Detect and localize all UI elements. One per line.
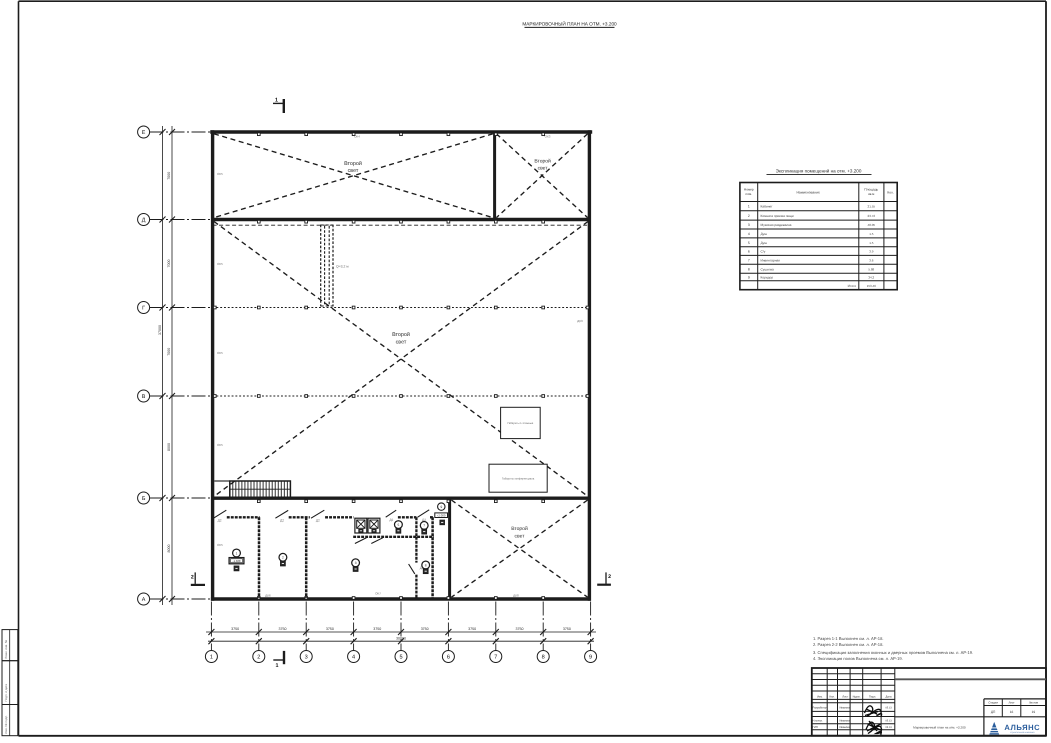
svg-text:Q=3,2 м: Q=3,2 м: [336, 264, 349, 268]
svg-text:30000: 30000: [396, 636, 406, 640]
svg-text:3750: 3750: [421, 627, 429, 631]
svg-text:ДК9: ДК9: [577, 319, 583, 323]
svg-text:7000: 7000: [167, 260, 171, 268]
svg-text:5: 5: [399, 655, 402, 661]
svg-text:свет: свет: [538, 165, 549, 171]
svg-text:ДК6: ДК6: [265, 594, 271, 598]
svg-text:Лист: Лист: [842, 695, 849, 698]
svg-text:Кол.: Кол.: [887, 191, 893, 195]
svg-text:Комната приема пищи: Комната приема пищи: [761, 214, 794, 218]
svg-text:7000: 7000: [167, 172, 171, 180]
svg-text:Второй: Второй: [511, 526, 528, 532]
svg-text:7000: 7000: [167, 348, 171, 356]
svg-text:ГИП: ГИП: [813, 726, 818, 729]
svg-text:3.6: 3.6: [869, 258, 874, 262]
svg-text:8: 8: [425, 563, 427, 567]
svg-text:Маркировочный план на отм. +3.: Маркировочный план на отм. +3.200: [913, 726, 966, 730]
svg-text:3750: 3750: [563, 627, 571, 631]
svg-text:Лист: Лист: [1008, 701, 1015, 705]
svg-text:05.13: 05.13: [885, 726, 892, 729]
svg-text:Изм.: Изм.: [817, 695, 823, 698]
svg-text:3. Спецификация заполнения око: 3. Спецификация заполнения оконных и две…: [813, 650, 973, 655]
svg-text:свет: свет: [348, 168, 359, 174]
svg-text:3.9: 3.9: [869, 250, 874, 254]
svg-text:8: 8: [542, 655, 545, 661]
svg-text:Подп. и дата: Подп. и дата: [4, 683, 8, 701]
svg-text:АЛЬЯНС: АЛЬЯНС: [1004, 723, 1040, 732]
svg-text:Номер: Номер: [744, 188, 754, 192]
svg-text:Д2: Д2: [316, 519, 320, 523]
svg-text:4: 4: [352, 655, 355, 661]
svg-text:Стадия: Стадия: [988, 701, 998, 705]
svg-text:8000: 8000: [167, 545, 171, 553]
svg-text:2: 2: [257, 655, 260, 661]
svg-text:19: 19: [1032, 710, 1036, 714]
svg-text:05.13: 05.13: [885, 720, 892, 723]
svg-text:Кол.: Кол.: [830, 695, 836, 698]
svg-text:1: 1: [276, 663, 279, 669]
svg-text:Площадь: Площадь: [864, 188, 878, 192]
svg-text:3: 3: [305, 655, 308, 661]
svg-text:ОК7: ОК7: [375, 592, 381, 596]
svg-text:Габариты конференцзала: Габариты конференцзала: [502, 477, 535, 480]
svg-text:Д: Д: [142, 217, 146, 223]
svg-text:Иванова: Иванова: [840, 726, 851, 729]
svg-text:Сушилка: Сушилка: [761, 267, 775, 271]
svg-text:3: 3: [748, 223, 750, 227]
svg-text:А: А: [142, 597, 146, 603]
svg-text:Коридор: Коридор: [761, 276, 774, 280]
svg-text:8000: 8000: [167, 443, 171, 451]
svg-text:1: 1: [748, 205, 750, 209]
svg-text:Взам. инв. №: Взам. инв. №: [4, 639, 8, 658]
svg-text:7: 7: [748, 258, 750, 262]
svg-text:Душ: Душ: [761, 232, 768, 236]
svg-text:МАРКИРОВОЧНЫЙ ПЛАН НА ОТМ. +3.: МАРКИРОВОЧНЫЙ ПЛАН НА ОТМ. +3.200: [522, 20, 617, 26]
svg-text:Дата: Дата: [886, 695, 892, 698]
svg-text:3750: 3750: [373, 627, 381, 631]
svg-text:2: 2: [282, 556, 284, 560]
svg-text:ОК5: ОК5: [217, 262, 223, 266]
svg-text:Д2: Д2: [389, 518, 393, 522]
svg-text:ОК4: ОК4: [354, 135, 360, 139]
svg-text:1: 1: [275, 98, 278, 104]
svg-text:свет: свет: [396, 339, 407, 345]
svg-text:4. Экспликация полов Выполнена: 4. Экспликация полов Выполнена см. л. АР…: [813, 656, 903, 661]
svg-text:1. Разрез 1-1 Выполнен см. л.: 1. Разрез 1-1 Выполнен см. л. АР-18.: [813, 636, 884, 641]
svg-text:Второй: Второй: [534, 159, 551, 165]
svg-text:7: 7: [423, 524, 425, 528]
svg-text:+2.000: +2.000: [437, 514, 446, 518]
svg-text:ДК8: ДК8: [513, 594, 519, 598]
svg-text:Н.контр.: Н.контр.: [813, 720, 824, 723]
svg-text:Габариты 1-этажные: Габариты 1-этажные: [508, 422, 534, 425]
svg-text:Второй: Второй: [344, 161, 362, 167]
svg-text:Д2: Д2: [280, 519, 284, 523]
svg-text:Душ: Душ: [761, 241, 768, 245]
svg-text:7: 7: [494, 655, 497, 661]
svg-text:6: 6: [447, 655, 450, 661]
svg-text:3750: 3750: [231, 627, 239, 631]
svg-text:строительная компания: строительная компания: [1010, 731, 1035, 734]
svg-text:153.46: 153.46: [867, 284, 877, 288]
svg-text:1.5: 1.5: [869, 241, 874, 245]
svg-text:3750: 3750: [326, 627, 334, 631]
svg-text:21.55: 21.55: [868, 205, 876, 209]
svg-text:Листов: Листов: [1029, 701, 1039, 705]
svg-text:Экспликация помещений на отм.: Экспликация помещений на отм. +3.200: [776, 168, 862, 173]
svg-text:ОК5: ОК5: [217, 443, 223, 447]
svg-text:В: В: [142, 394, 146, 400]
svg-text:Кабинет: Кабинет: [761, 205, 774, 209]
svg-text:2: 2: [608, 574, 611, 580]
svg-text:Наименование: Наименование: [796, 191, 820, 195]
svg-text:Подп.: Подп.: [869, 695, 876, 698]
svg-text:9: 9: [748, 276, 750, 280]
svg-text:пом.: пом.: [746, 192, 753, 196]
svg-text:9: 9: [440, 505, 442, 509]
svg-text:8: 8: [748, 267, 750, 271]
svg-text:23.72: 23.72: [868, 214, 876, 218]
svg-text:16: 16: [1010, 710, 1014, 714]
svg-text:ОК5: ОК5: [217, 543, 223, 547]
svg-text:С/у: С/у: [761, 250, 766, 254]
svg-text:48.05: 48.05: [868, 223, 876, 227]
svg-text:5.88: 5.88: [868, 267, 874, 271]
svg-text:ОК5: ОК5: [217, 351, 223, 355]
svg-text:Инвентарная: Инвентарная: [761, 258, 781, 262]
svg-text:Разработал: Разработал: [813, 707, 828, 710]
svg-text:5: 5: [398, 523, 400, 527]
svg-text:1.5: 1.5: [869, 232, 874, 236]
svg-text:3750: 3750: [279, 627, 287, 631]
svg-text:3750: 3750: [468, 627, 476, 631]
svg-text:ОК5: ОК5: [217, 172, 223, 176]
svg-text:ДП: ДП: [991, 710, 996, 714]
svg-text:2. Разрез 2-2 Выполнен см. л.: 2. Разрез 2-2 Выполнен см. л. АР-18.: [813, 642, 884, 647]
svg-text:Второй: Второй: [392, 332, 410, 338]
svg-text:Мужская раздевалка: Мужская раздевалка: [761, 223, 792, 227]
svg-text:Иванова: Иванова: [840, 720, 851, 723]
svg-text:1: 1: [236, 551, 238, 555]
svg-text:2: 2: [191, 575, 194, 581]
svg-text:Инв. № подл.: Инв. № подл.: [4, 715, 8, 734]
svg-text:1: 1: [210, 655, 213, 661]
svg-text:4: 4: [748, 232, 750, 236]
svg-text:6: 6: [748, 250, 750, 254]
svg-text:3750: 3750: [516, 627, 524, 631]
svg-text:5: 5: [748, 241, 750, 245]
svg-text:Б: Б: [142, 496, 146, 502]
svg-text:-1.500: -1.500: [233, 559, 241, 563]
svg-text:3: 3: [355, 561, 357, 565]
svg-text:05.13: 05.13: [885, 707, 892, 710]
svg-text:№док.: №док.: [853, 695, 861, 698]
svg-text:34.2: 34.2: [868, 276, 874, 280]
svg-text:свет: свет: [514, 533, 525, 539]
svg-text:ОК3: ОК3: [545, 135, 551, 139]
svg-text:Иванова: Иванова: [840, 707, 851, 710]
svg-text:Е: Е: [142, 130, 146, 136]
svg-text:2: 2: [748, 214, 750, 218]
svg-text:кв.м: кв.м: [868, 192, 874, 196]
svg-text:Г: Г: [142, 305, 145, 311]
svg-text:Итого: Итого: [848, 284, 857, 288]
svg-text:9: 9: [589, 655, 592, 661]
svg-text:37000: 37000: [158, 325, 162, 335]
svg-text:Д2: Д2: [218, 519, 222, 523]
